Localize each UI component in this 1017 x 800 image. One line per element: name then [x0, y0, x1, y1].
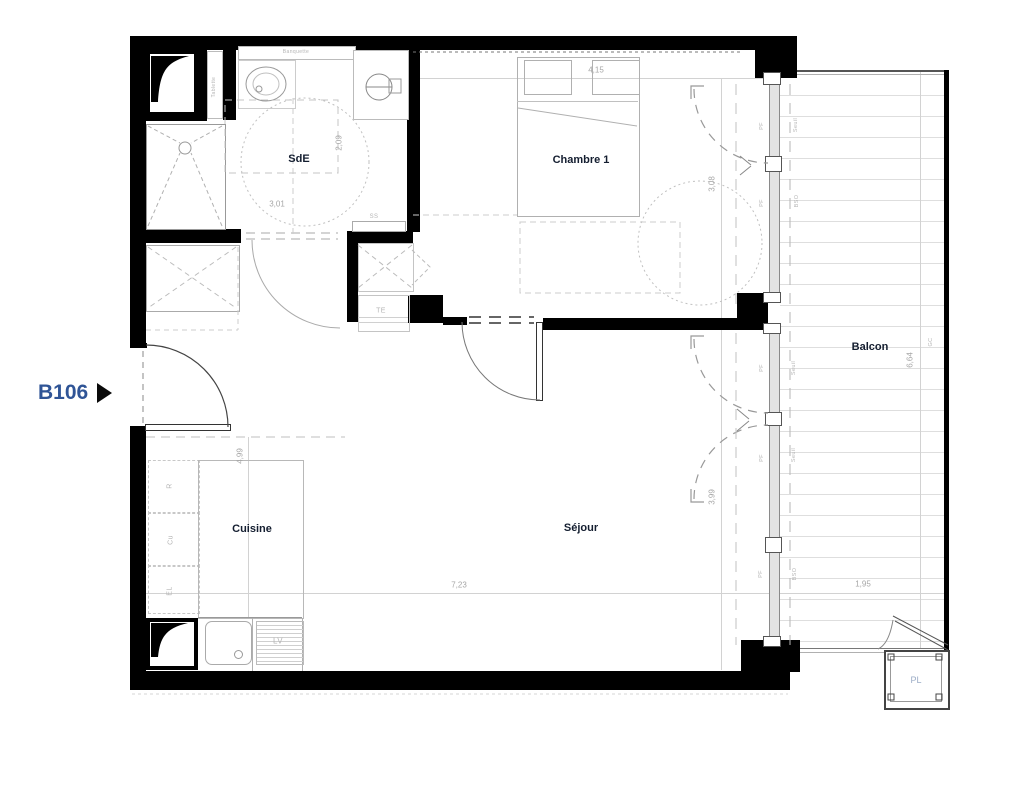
label-seuil-2: Seuil: [791, 361, 797, 375]
window-jamb-chambre-bottom: [763, 292, 781, 303]
label-seuil-1: Seuil: [793, 118, 799, 132]
label-cu: Cu: [168, 535, 175, 545]
kitchen-appliance-el: [148, 565, 200, 614]
label-seuil-3: Seuil: [791, 448, 797, 462]
duct-box-top: [146, 50, 198, 116]
window-mullion-chambre: [765, 156, 782, 172]
ss-bench: [352, 221, 406, 232]
label-pf-sejour-3: PF: [758, 570, 764, 578]
kitchen-cell-divider-1: [252, 618, 253, 671]
sde-door-arc: [252, 240, 340, 328]
label-bso-1: BSO: [794, 195, 800, 208]
wall-top: [130, 36, 771, 50]
sejour-door-leaf: [536, 322, 543, 401]
dim-line-vertical-right: [721, 78, 722, 670]
wall-te-block: [408, 295, 443, 323]
wall-bottom: [130, 671, 790, 690]
window-jamb-sejour-top: [763, 323, 781, 334]
sejour-window-bracket-2: [691, 489, 704, 502]
window-jamb-sejour-bottom: [763, 636, 781, 647]
sde-clearance-rect: [225, 100, 338, 173]
window-jamb-chambre-top: [763, 72, 781, 85]
balcony-top-edge-inner: [782, 74, 948, 75]
chambre-clearance-circle: [638, 181, 762, 305]
window-mullion-sejour-2: [765, 537, 782, 553]
label-tablette: Tablette: [211, 77, 217, 98]
kitchen-sink: [205, 621, 252, 665]
kitchen-appliance-r: [148, 460, 200, 514]
room-label-balcon: Balcon: [852, 341, 889, 353]
room-label-chambre-1: Chambre 1: [553, 154, 610, 166]
label-lv: LV: [273, 637, 283, 646]
hall-cabinet: [146, 245, 240, 312]
balcony-right-edge: [944, 70, 949, 654]
label-pf-sejour-2: PF: [759, 454, 765, 462]
sejour-window-bracket-1: [691, 336, 704, 349]
balcony-top-edge: [797, 70, 948, 72]
label-banquette: Banquette: [283, 49, 309, 55]
balcony-grid-line: [920, 72, 921, 648]
sde-door-dash: [246, 233, 338, 239]
balcony-bottom-edge: [800, 648, 944, 649]
label-ss: SS: [370, 214, 379, 220]
bed-headboard-line: [517, 101, 638, 102]
dim-1-95: 1,95: [855, 580, 871, 589]
wall-hall-vertical: [347, 243, 358, 322]
sejour-door-arc: [462, 322, 540, 400]
chambre-clearance-rect: [520, 222, 680, 293]
window-chambre: [769, 84, 780, 300]
dim-6-64: 6,64: [906, 352, 915, 368]
wall-left-lower: [130, 430, 146, 690]
room-label-sejour: Séjour: [564, 522, 598, 534]
wall-left-upper: [130, 36, 146, 347]
label-pf-chambre-1: PF: [759, 122, 765, 130]
label-te: TE: [376, 308, 386, 315]
dim-3-08: 3,08: [708, 176, 717, 192]
window-sejour: [769, 331, 780, 642]
bed-pillow-left: [524, 60, 572, 95]
hall-cabinet-2-door: [412, 250, 430, 285]
wc-box: [353, 50, 409, 120]
sink-drain: [234, 650, 243, 659]
window-mullion-sejour-1: [765, 412, 782, 426]
wall-tablette-right: [223, 50, 236, 120]
wall-chambre-sejour: [543, 318, 739, 330]
sejour-window-chevron: [737, 409, 749, 431]
hall-cabinet-2: [358, 243, 414, 292]
label-gc: GC: [928, 337, 934, 346]
te-line-2: [358, 322, 408, 323]
chambre-window-bracket: [691, 86, 704, 99]
floor-plan: B106 SdEChambre 1BalconCuisineSéjourPL4,…: [0, 0, 1017, 800]
entry-door-arc: [146, 345, 228, 427]
room-label-cuisine: Cuisine: [232, 523, 272, 535]
dim-4-99: 4,99: [236, 448, 245, 464]
dim-2-09: 2,09: [335, 135, 344, 151]
label-pf-sejour-1: PF: [759, 364, 765, 372]
wall-duct-right: [197, 50, 207, 120]
wall-sde-bottom-left: [130, 229, 241, 243]
dim-3-99: 3,99: [708, 489, 717, 505]
label-pf-chambre-2: PF: [759, 199, 765, 207]
dim-4-15: 4,15: [588, 66, 604, 75]
sejour-door-dash: [469, 317, 534, 323]
wall-step: [443, 317, 467, 325]
entry-door-leaf: [145, 424, 231, 431]
chambre-window-chevron: [740, 156, 751, 175]
wall-sde-bottom-right: [347, 231, 413, 243]
room-label-pl: PL: [910, 675, 921, 685]
entry-jamb-top: [130, 343, 147, 348]
label-r: R: [167, 483, 174, 488]
shower-tray: [146, 124, 226, 230]
dim-3-01: 3,01: [269, 200, 285, 209]
kitchen-block: [198, 460, 304, 619]
chambre-window-arc: [694, 89, 768, 163]
unit-label: B106: [38, 381, 88, 405]
sejour-window-arc-2: [694, 425, 768, 499]
duct-box-bottom: [146, 618, 198, 670]
washbasin-counter: [238, 60, 296, 109]
te-line-1: [358, 317, 408, 318]
kitchen-counter-top: [198, 617, 302, 618]
unit-arrow-icon: [97, 383, 112, 403]
room-label-sde: SdE: [288, 153, 309, 165]
label-el: EL: [167, 586, 174, 595]
dim-7-23: 7,23: [451, 581, 467, 590]
label-bso-2: BSO: [792, 568, 798, 581]
sejour-window-arc-1: [694, 339, 768, 413]
